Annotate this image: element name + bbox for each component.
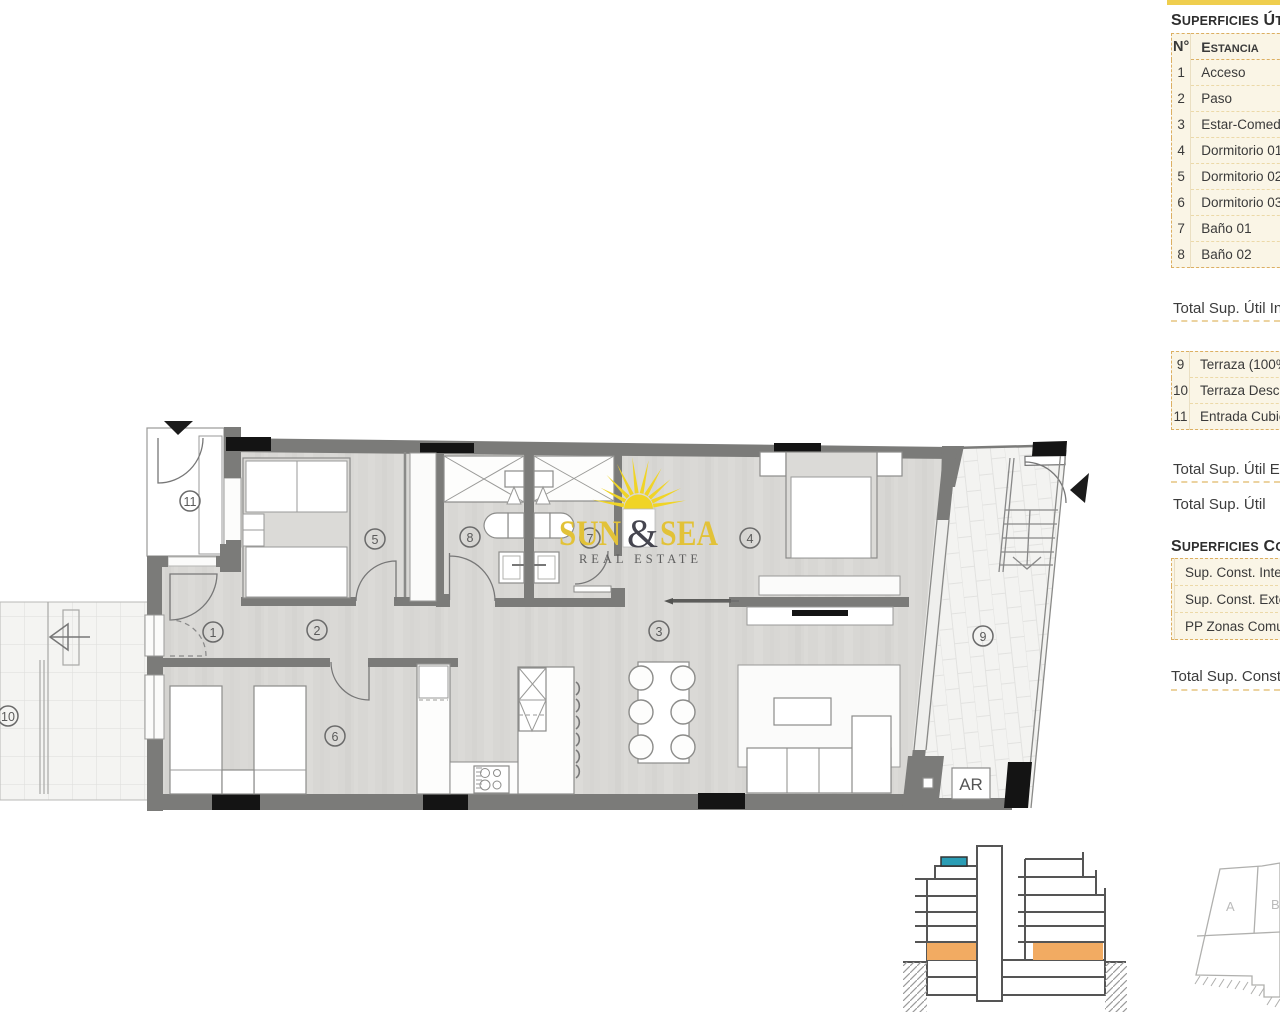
svg-text:9: 9 (980, 630, 987, 644)
svg-text:11: 11 (184, 495, 197, 509)
svg-text:B: B (1271, 897, 1280, 912)
svg-text:2: 2 (314, 624, 321, 638)
svg-text:REAL ESTATE: REAL ESTATE (579, 552, 702, 566)
svg-text:8: 8 (467, 531, 474, 545)
svg-text:10: 10 (1, 710, 15, 724)
svg-text:6: 6 (332, 730, 339, 744)
svg-text:SUN: SUN (559, 513, 621, 553)
svg-text:3: 3 (656, 625, 663, 639)
svg-text:4: 4 (747, 532, 754, 546)
svg-text:SEA: SEA (660, 513, 718, 553)
svg-text:&: & (627, 511, 658, 556)
svg-text:A: A (1226, 899, 1235, 914)
svg-text:5: 5 (372, 533, 379, 547)
svg-text:1: 1 (210, 626, 217, 640)
svg-text:AR: AR (959, 775, 983, 794)
